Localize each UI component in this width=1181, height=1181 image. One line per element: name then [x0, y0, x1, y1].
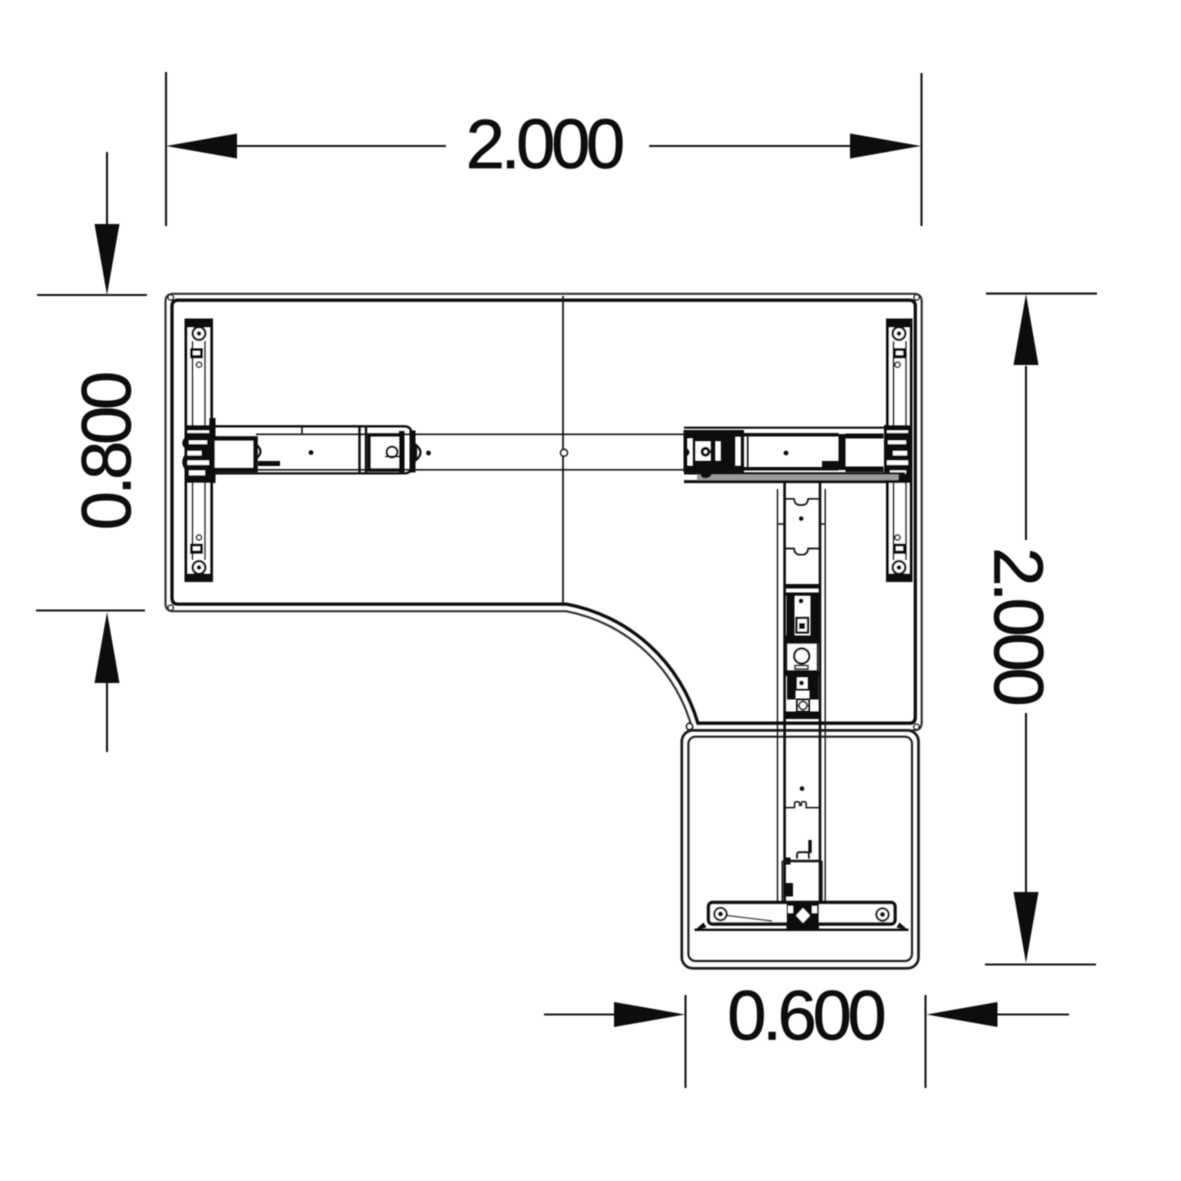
svg-text:2.000: 2.000 [466, 105, 623, 183]
svg-text:0.600: 0.600 [727, 977, 884, 1055]
svg-text:2.000: 2.000 [980, 547, 1058, 704]
svg-text:0.800: 0.800 [68, 373, 146, 530]
